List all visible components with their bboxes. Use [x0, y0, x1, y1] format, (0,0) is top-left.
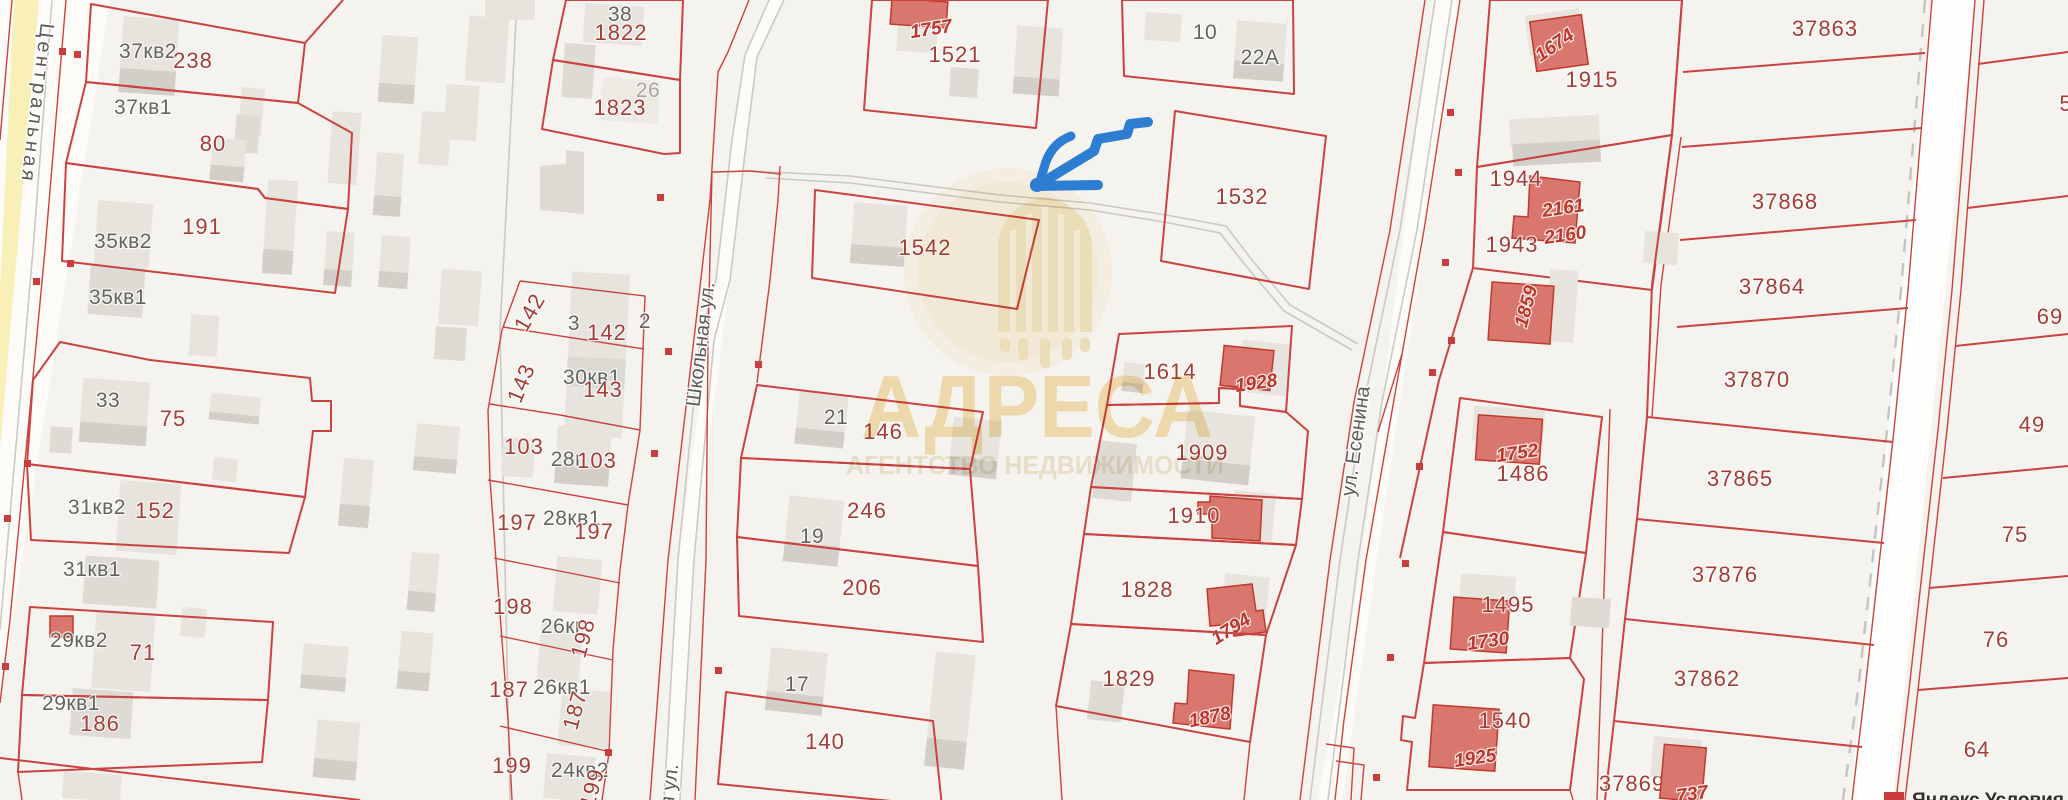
- svg-text:1943: 1943: [1486, 232, 1539, 257]
- svg-text:33: 33: [96, 389, 120, 412]
- svg-text:197: 197: [497, 510, 537, 535]
- svg-text:75: 75: [160, 406, 186, 431]
- svg-text:37кв2: 37кв2: [119, 40, 177, 63]
- svg-text:37863: 37863: [1792, 16, 1858, 41]
- svg-text:29кв2: 29кв2: [50, 629, 108, 652]
- svg-text:143: 143: [583, 377, 623, 402]
- svg-text:35кв2: 35кв2: [94, 230, 152, 253]
- svg-text:1532: 1532: [1216, 184, 1269, 209]
- svg-text:31кв2: 31кв2: [68, 496, 126, 519]
- svg-text:69: 69: [2037, 304, 2063, 329]
- svg-text:152: 152: [135, 498, 175, 523]
- svg-text:103: 103: [577, 448, 617, 473]
- svg-text:10: 10: [1193, 21, 1217, 44]
- svg-text:37864: 37864: [1739, 274, 1805, 299]
- svg-text:103: 103: [504, 434, 544, 459]
- svg-text:35кв1: 35кв1: [89, 286, 147, 309]
- svg-text:1828: 1828: [1121, 577, 1174, 602]
- svg-text:3: 3: [568, 312, 580, 335]
- svg-text:22А: 22А: [1241, 46, 1280, 69]
- svg-text:1521: 1521: [929, 42, 982, 67]
- svg-text:37870: 37870: [1724, 367, 1790, 392]
- svg-text:187: 187: [489, 677, 529, 702]
- svg-text:142: 142: [587, 320, 627, 345]
- svg-text:37865: 37865: [1707, 466, 1773, 491]
- svg-text:186: 186: [80, 711, 120, 736]
- svg-text:199: 199: [492, 753, 532, 778]
- svg-text:37868: 37868: [1752, 189, 1818, 214]
- svg-text:31кв1: 31кв1: [63, 558, 121, 581]
- svg-text:1486: 1486: [1497, 461, 1550, 486]
- svg-text:1910: 1910: [1168, 503, 1221, 528]
- svg-text:206: 206: [842, 575, 882, 600]
- svg-text:Яндекс Условия исп: Яндекс Условия исп: [1912, 790, 2068, 800]
- svg-text:76: 76: [1983, 627, 2009, 652]
- svg-text:21: 21: [824, 406, 848, 429]
- svg-text:80: 80: [200, 131, 226, 156]
- svg-text:37кв1: 37кв1: [114, 96, 172, 119]
- svg-text:2: 2: [639, 310, 651, 333]
- svg-text:246: 246: [847, 498, 887, 523]
- svg-text:198: 198: [493, 594, 533, 619]
- svg-text:37876: 37876: [1692, 562, 1758, 587]
- svg-text:АДРЕСА: АДРЕСА: [861, 357, 1213, 456]
- svg-text:5: 5: [2059, 91, 2068, 116]
- svg-text:1829: 1829: [1103, 666, 1156, 691]
- svg-text:75: 75: [2002, 522, 2028, 547]
- svg-text:1495: 1495: [1482, 592, 1535, 617]
- svg-text:37862: 37862: [1674, 666, 1740, 691]
- svg-text:191: 191: [182, 214, 222, 239]
- svg-text:1540: 1540: [1479, 708, 1532, 733]
- svg-text:АГЕНТСТВО НЕДВИЖИМОСТИ: АГЕНТСТВО НЕДВИЖИМОСТИ: [846, 450, 1224, 480]
- svg-text:140: 140: [805, 729, 845, 754]
- svg-text:1823: 1823: [594, 95, 647, 120]
- svg-text:17: 17: [785, 673, 809, 696]
- svg-text:49: 49: [2019, 412, 2045, 437]
- svg-text:238: 238: [173, 48, 213, 73]
- svg-text:64: 64: [1964, 737, 1990, 762]
- svg-text:197: 197: [574, 519, 614, 544]
- svg-text:1822: 1822: [595, 20, 648, 45]
- svg-text:1944: 1944: [1490, 166, 1543, 191]
- svg-text:71: 71: [130, 640, 156, 665]
- svg-text:1915: 1915: [1566, 67, 1619, 92]
